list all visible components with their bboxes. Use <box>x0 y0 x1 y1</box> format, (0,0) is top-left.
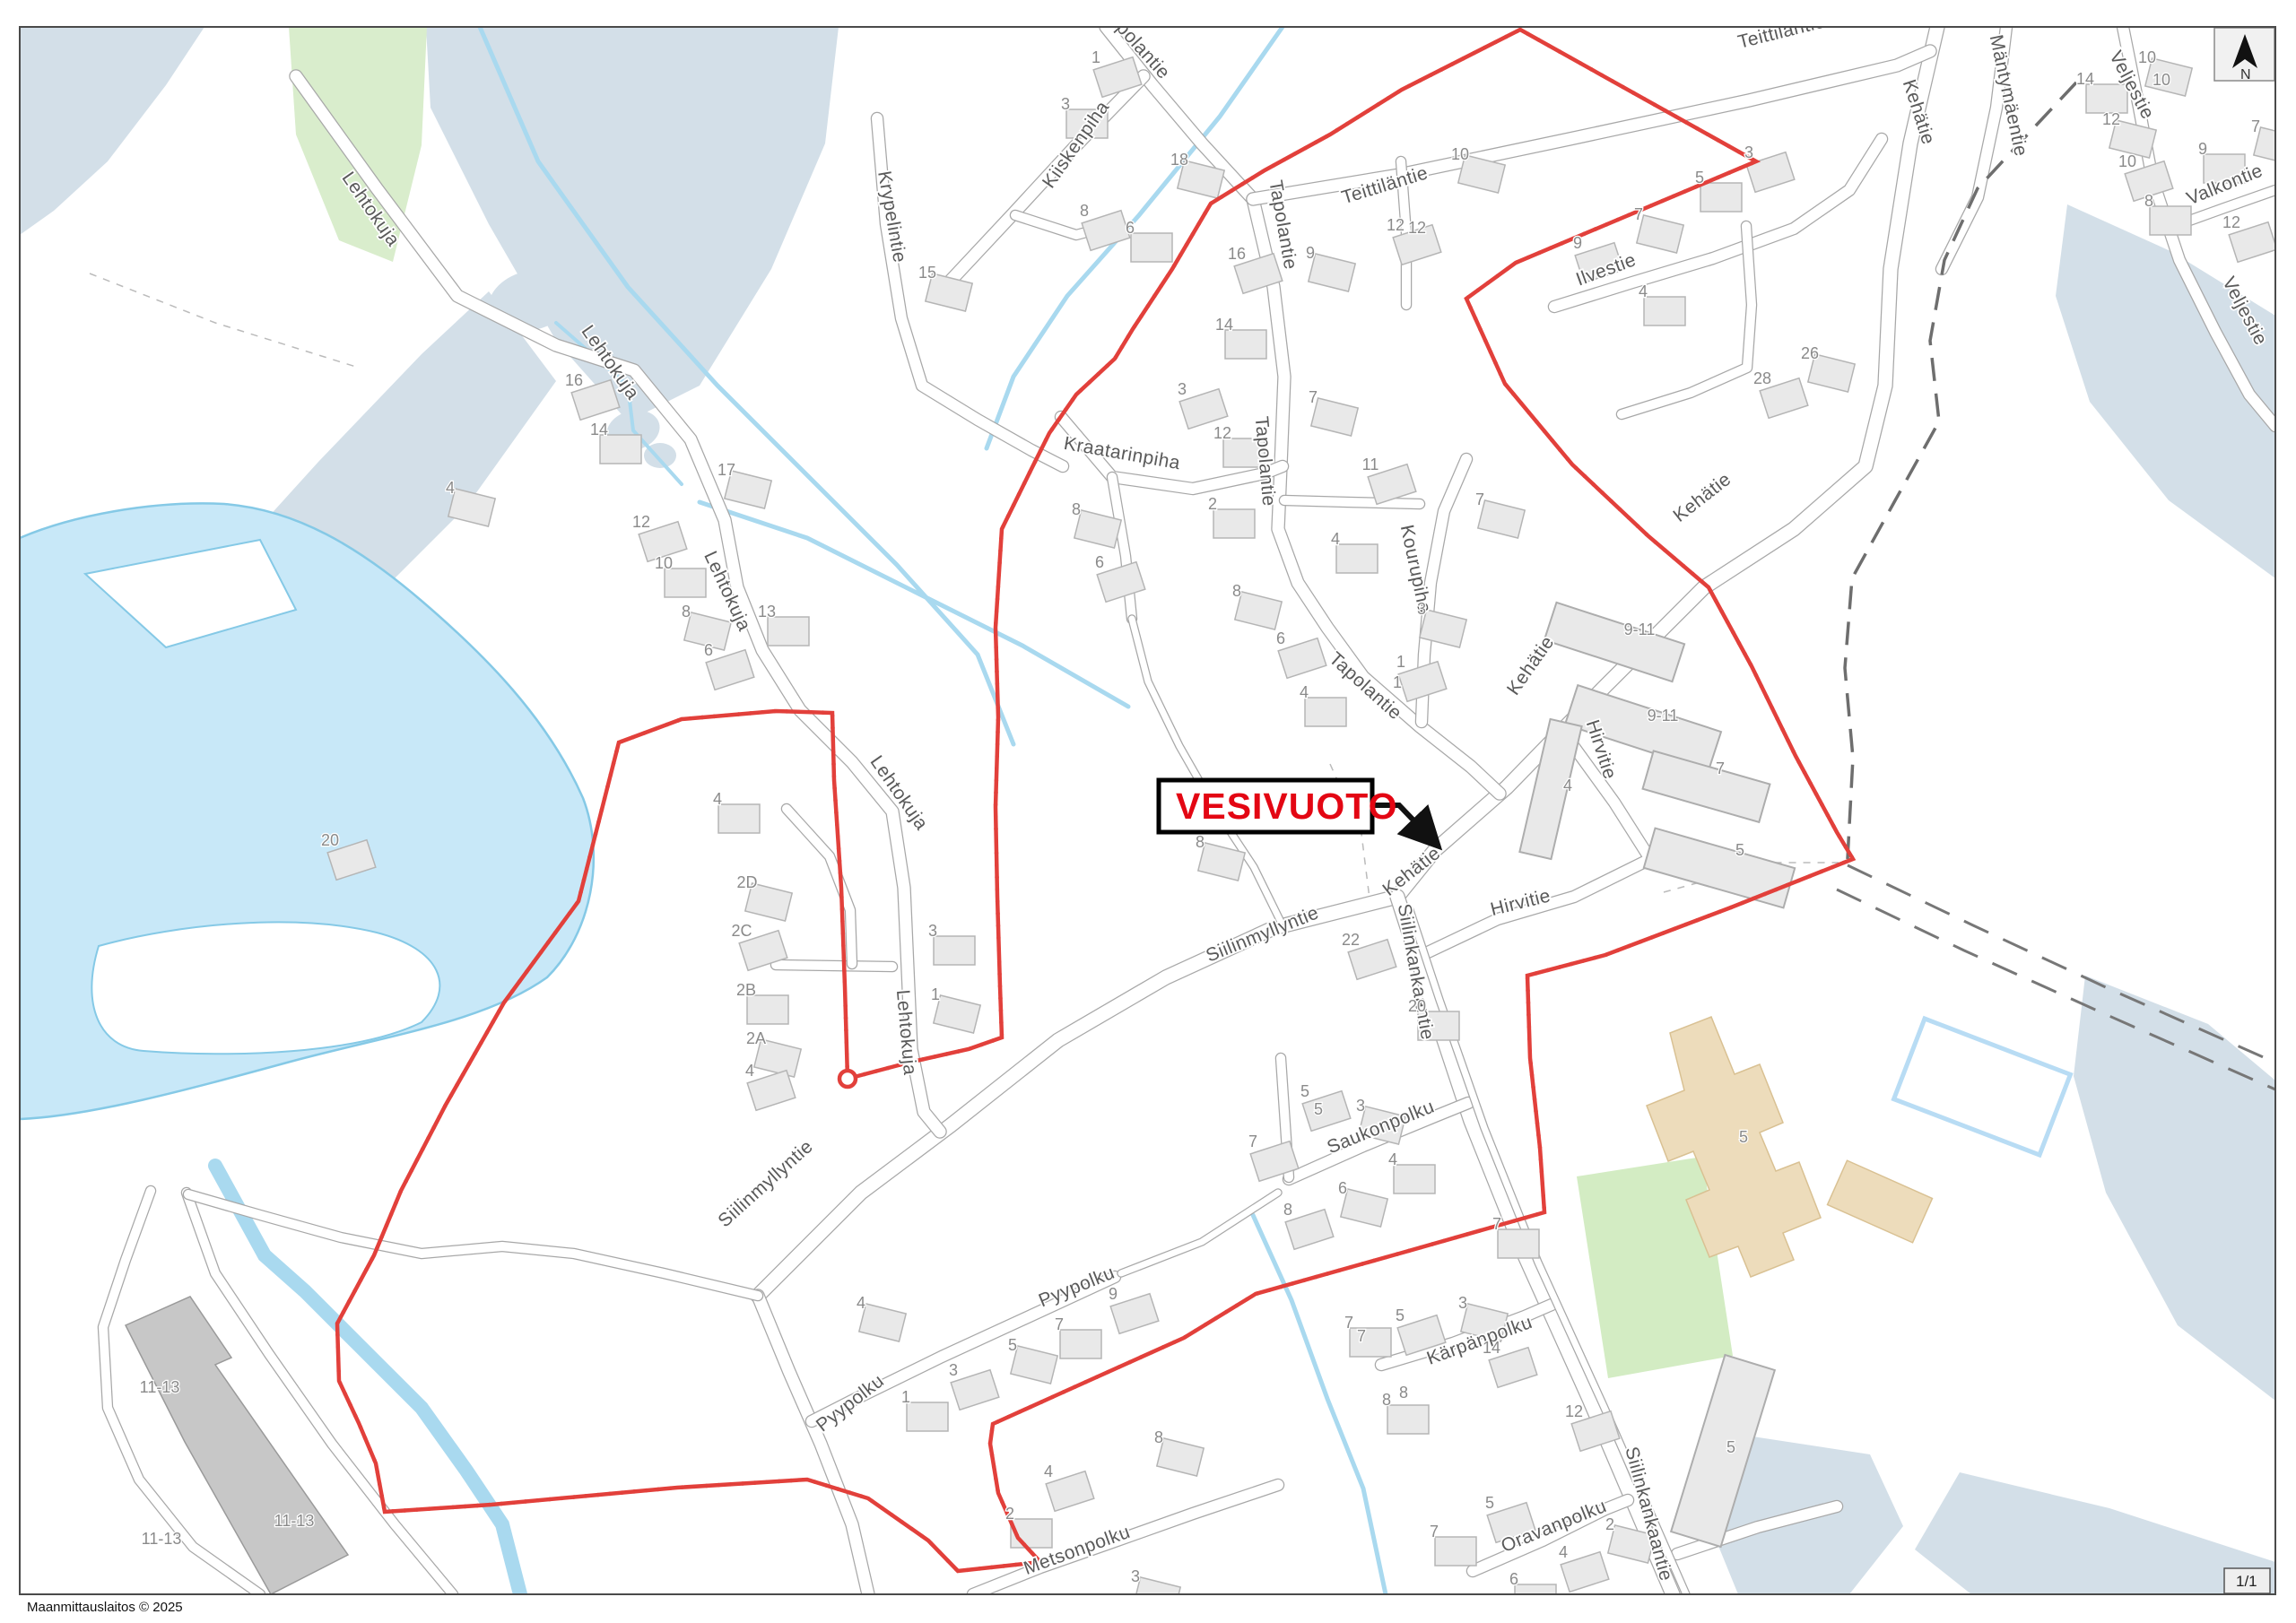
house-number: 17 <box>717 461 735 479</box>
industrial-building <box>126 1297 348 1594</box>
house-number: 7 <box>1309 388 1318 406</box>
page-indicator: 1/1 <box>2224 1568 2270 1593</box>
house-number: 22 <box>1342 931 1360 949</box>
house-number: 1 <box>901 1388 910 1406</box>
page-indicator-label: 1/1 <box>2236 1573 2257 1590</box>
house-number: 1 <box>1396 653 1405 671</box>
parcel-line <box>90 273 359 368</box>
house-number: 9-11 <box>1624 621 1656 638</box>
house-number: 15 <box>918 264 936 282</box>
building <box>1060 1330 1101 1358</box>
house-number: 2A <box>746 1029 766 1047</box>
building <box>1309 254 1355 291</box>
house-number: 7 <box>1475 490 1484 508</box>
apartment-block <box>1519 719 1581 859</box>
building <box>1225 330 1266 359</box>
house-number: 4 <box>1388 1150 1397 1168</box>
building <box>1134 1577 1180 1615</box>
house-number: 1 <box>1091 48 1100 66</box>
house-number: 1 <box>1393 673 1402 691</box>
house-number: 2D <box>736 873 757 891</box>
boundary-dashed-line <box>1845 82 2076 859</box>
house-number: 12 <box>1565 1402 1583 1420</box>
building <box>1341 1189 1387 1227</box>
building <box>1336 544 1378 573</box>
house-number: 4 <box>1331 530 1340 548</box>
house-number: 7 <box>2251 117 2260 135</box>
street-label-kehätie: Kehätie <box>1503 632 1559 699</box>
house-number: 4 <box>1044 1462 1053 1480</box>
house-number: 12 <box>2102 110 2120 128</box>
building <box>934 995 980 1033</box>
house-number: 9 <box>1306 244 1315 262</box>
boundary-dashed-line <box>1837 890 2275 1089</box>
street-label-teittiläntie: Teittiläntie <box>1339 162 1431 208</box>
house-number: 5 <box>1739 1128 1748 1146</box>
building <box>1011 1346 1057 1384</box>
stream <box>1253 1215 1386 1594</box>
house-number: 14 <box>590 421 608 438</box>
house-number: 13 <box>758 603 776 621</box>
building <box>1110 1294 1159 1334</box>
house-number: 8 <box>1399 1384 1408 1402</box>
house-number: 3 <box>1131 1567 1140 1585</box>
house-number: 2 <box>1208 495 1217 513</box>
house-number: 6 <box>1095 553 1104 571</box>
building <box>1435 1537 1476 1566</box>
school-annex <box>1828 1160 1933 1243</box>
house-number: 4 <box>857 1294 865 1312</box>
house-number: 8 <box>2144 192 2153 210</box>
building <box>1478 500 1525 538</box>
house-number: 4 <box>1563 777 1572 794</box>
house-number: 11-13 <box>140 1378 180 1396</box>
house-number: 5 <box>1726 1438 1735 1456</box>
house-number: 14 <box>2076 70 2094 88</box>
house-number: 5 <box>1396 1306 1405 1324</box>
house-number: 7 <box>1492 1215 1501 1233</box>
house-number: 8 <box>1283 1201 1292 1219</box>
building <box>951 1370 999 1410</box>
building <box>1700 183 1742 212</box>
house-number: 26 <box>1801 344 1819 362</box>
house-number: 8 <box>1232 582 1241 600</box>
building <box>2150 206 2191 235</box>
house-number: 12 <box>2222 213 2240 231</box>
building <box>859 1304 906 1341</box>
building <box>1082 211 1130 251</box>
building <box>1285 1210 1334 1250</box>
building <box>1302 1091 1351 1132</box>
house-number: 20 <box>321 831 339 849</box>
house-number: 6 <box>704 641 713 659</box>
house-number: 5 <box>1314 1100 1323 1118</box>
house-number: 11-13 <box>274 1512 315 1530</box>
house-number: 9 <box>1573 234 1582 252</box>
house-number: 7 <box>1430 1523 1439 1541</box>
boundary-dashed-line <box>1848 865 2275 1063</box>
house-number: 3 <box>1417 600 1426 618</box>
house-number: 12 <box>1213 424 1231 442</box>
building <box>1561 1552 1609 1593</box>
house-number: 8 <box>682 603 691 621</box>
building <box>747 995 788 1024</box>
house-number: 5 <box>1735 841 1744 859</box>
house-number: 7 <box>1248 1133 1257 1150</box>
map-canvas: LehtokujaLehtokujaLehtokujaLehtokujaLeht… <box>0 0 2296 1623</box>
house-number: 10 <box>2118 152 2136 170</box>
building <box>1278 638 1326 679</box>
street-label-siilinmyllyntie: Siilinmyllyntie <box>714 1136 817 1231</box>
building <box>448 489 495 526</box>
building <box>1305 698 1346 726</box>
building <box>665 568 706 597</box>
house-number: 5 <box>1695 169 1704 187</box>
house-number: 9-11 <box>1648 707 1679 725</box>
callout-label: VESIVUOTO <box>1176 785 1397 827</box>
house-number: 18 <box>1170 151 1188 169</box>
house-number: 4 <box>1559 1543 1568 1561</box>
road <box>1132 619 1281 922</box>
house-number: 8 <box>1072 500 1081 518</box>
road <box>776 965 892 967</box>
building <box>1637 215 1683 253</box>
street-label-teittiläntie: Teittiläntie <box>1735 12 1827 53</box>
building <box>706 650 754 690</box>
house-number: 14 <box>1483 1339 1500 1357</box>
house-number: 8 <box>1382 1391 1391 1409</box>
house-number: 10 <box>1451 145 1469 163</box>
house-number: 3 <box>1458 1294 1467 1312</box>
building <box>1131 233 1172 262</box>
house-number: 7 <box>1357 1327 1366 1345</box>
street-label-siilinmyllyntie: Siilinmyllyntie <box>1203 902 1321 966</box>
north-label: N <box>2240 67 2251 82</box>
building <box>1179 389 1228 430</box>
house-number: 4 <box>745 1062 754 1080</box>
building <box>1350 1328 1391 1357</box>
house-number: 4 <box>1300 683 1309 701</box>
street-label-tapolantie: Tapolantie <box>1251 415 1280 507</box>
pool-outline <box>1894 1019 2071 1155</box>
house-number: 5 <box>1300 1082 1309 1100</box>
house-number: 20 <box>1408 997 1426 1015</box>
house-number: 6 <box>1509 1570 1518 1588</box>
house-number: 4 <box>446 479 455 497</box>
house-number: 7 <box>1055 1315 1064 1333</box>
building <box>1644 297 1685 325</box>
house-number: 3 <box>1178 380 1187 398</box>
building <box>1046 1471 1094 1512</box>
building <box>1213 509 1255 538</box>
road <box>1106 27 1253 199</box>
boundary-endpoint-marker <box>839 1071 856 1087</box>
house-number: 7 <box>1716 759 1725 777</box>
house-number: 3 <box>1356 1097 1365 1115</box>
house-number: 5 <box>1008 1336 1017 1354</box>
house-number: 3 <box>1061 95 1070 113</box>
house-number: 10 <box>2152 71 2170 89</box>
building <box>1235 592 1282 629</box>
building <box>934 936 975 965</box>
house-number: 9 <box>2198 140 2207 158</box>
building <box>1157 1438 1204 1476</box>
house-number: 16 <box>1228 245 1246 263</box>
house-number: 11-13 <box>142 1530 182 1548</box>
house-number: 10 <box>2138 48 2156 66</box>
building <box>1398 662 1447 702</box>
building <box>907 1402 948 1431</box>
house-number: 4 <box>1639 282 1648 300</box>
street-label-pyypolku: Pyypolku <box>813 1370 888 1436</box>
apartment-block <box>1644 829 1795 908</box>
house-number: 11 <box>1362 456 1379 473</box>
house-number: 9 <box>1109 1285 1118 1303</box>
house-number: 3 <box>1744 143 1753 161</box>
building <box>600 435 641 464</box>
road <box>1284 500 1420 504</box>
house-number: 8 <box>1080 202 1089 220</box>
building <box>1097 562 1145 603</box>
street-label-kehätie: Kehätie <box>1378 843 1444 900</box>
house-number: 7 <box>1634 205 1643 223</box>
house-number: 2 <box>1005 1505 1014 1523</box>
building <box>1387 1405 1429 1434</box>
house-number: 2C <box>731 922 752 940</box>
house-number: 3 <box>949 1361 958 1379</box>
house-number: 1 <box>931 985 940 1003</box>
house-number: 12 <box>1387 216 1405 234</box>
building <box>2086 84 2127 113</box>
building <box>1498 1229 1539 1258</box>
house-number: 2 <box>1605 1515 1614 1533</box>
road <box>1121 1193 1278 1273</box>
copyright-text: Maanmittauslaitos © 2025 <box>27 1600 183 1615</box>
house-number: 16 <box>565 371 583 389</box>
house-number: 2B <box>736 981 756 999</box>
house-number: 7 <box>1344 1314 1353 1332</box>
lake-island <box>91 922 439 1054</box>
house-number: 6 <box>1338 1179 1347 1197</box>
street-label-kraatarinpiha: Kraatarinpiha <box>1062 433 1181 473</box>
street-label-kehätie: Kehätie <box>1669 469 1735 526</box>
house-number: 10 <box>655 554 673 572</box>
house-number: 14 <box>1215 316 1233 334</box>
building <box>1515 1584 1556 1613</box>
road <box>1253 51 1930 199</box>
house-number: 8 <box>1196 833 1205 851</box>
house-number: 6 <box>1126 219 1135 237</box>
house-number: 12 <box>1408 219 1426 237</box>
building <box>1311 398 1358 436</box>
house-number: 5 <box>1485 1494 1494 1512</box>
house-number: 6 <box>1276 629 1285 647</box>
building <box>718 804 760 833</box>
building <box>768 617 809 646</box>
building <box>747 1071 796 1111</box>
house-number: 12 <box>632 513 650 531</box>
house-number: 4 <box>713 790 722 808</box>
house-number: 8 <box>1154 1428 1163 1446</box>
house-number: 28 <box>1753 369 1771 387</box>
house-number: 3 <box>928 922 937 940</box>
building <box>1394 1165 1435 1193</box>
north-arrow: N <box>2214 28 2274 82</box>
